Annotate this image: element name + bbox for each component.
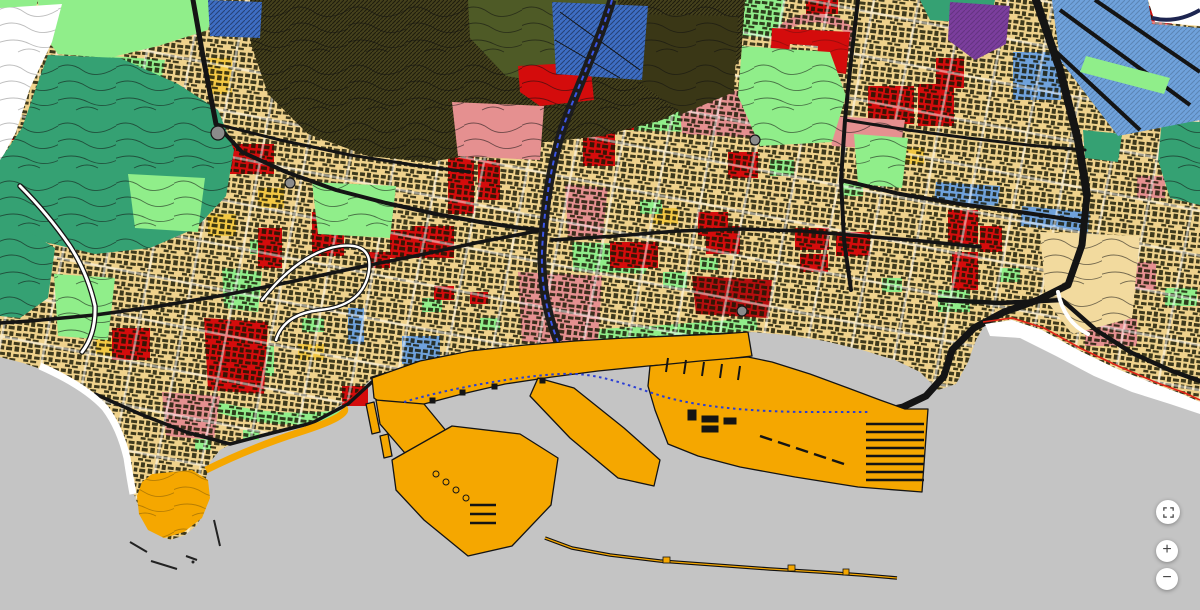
roundabout [211, 126, 225, 140]
roundabout [750, 135, 760, 145]
map-viewport[interactable]: + − [0, 0, 1200, 610]
fullscreen-icon [1163, 507, 1174, 518]
minus-icon: − [1162, 570, 1171, 586]
roundabout [285, 178, 295, 188]
roundabout [737, 306, 747, 316]
map-canvas[interactable] [0, 0, 1200, 610]
zoom-out-button[interactable]: − [1156, 568, 1178, 590]
zoom-in-button[interactable]: + [1156, 540, 1178, 562]
plus-icon: + [1162, 542, 1171, 558]
fullscreen-button[interactable] [1156, 500, 1180, 524]
